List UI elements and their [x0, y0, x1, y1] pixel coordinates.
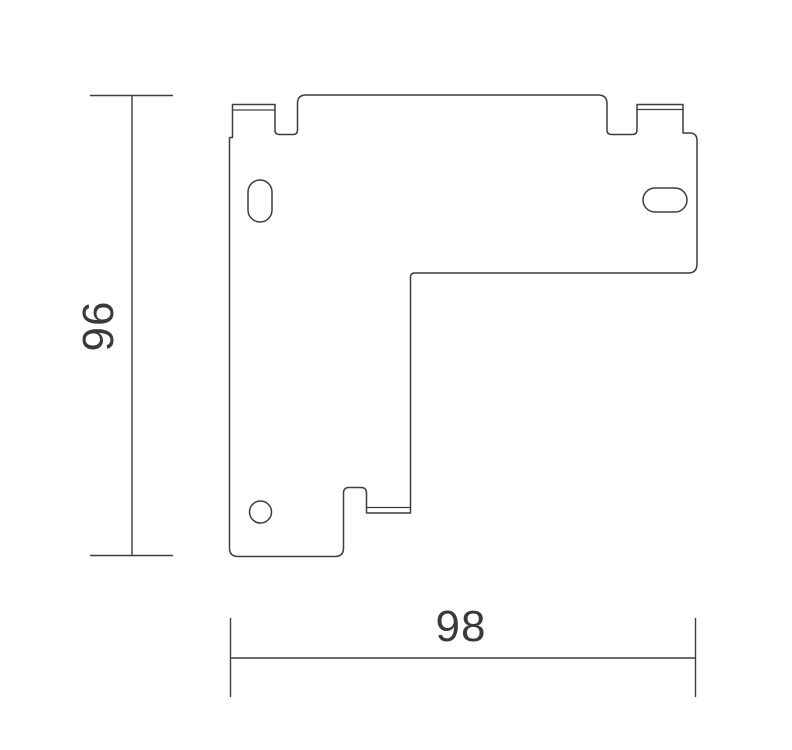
bracket-part [230, 95, 698, 557]
part-outline [230, 95, 698, 557]
bottom-left-screw-hole [250, 501, 272, 523]
right-horizontal-slot-hole [643, 188, 687, 212]
horizontal-dimension: 98 [231, 602, 696, 697]
vertical-dimension-label: 96 [74, 301, 123, 352]
technical-drawing-page: 96 98 [0, 0, 792, 750]
technical-drawing-canvas: 96 98 [0, 0, 792, 750]
vertical-dimension: 96 [74, 96, 173, 556]
left-vertical-slot-hole [248, 180, 272, 222]
horizontal-dimension-label: 98 [436, 602, 487, 651]
